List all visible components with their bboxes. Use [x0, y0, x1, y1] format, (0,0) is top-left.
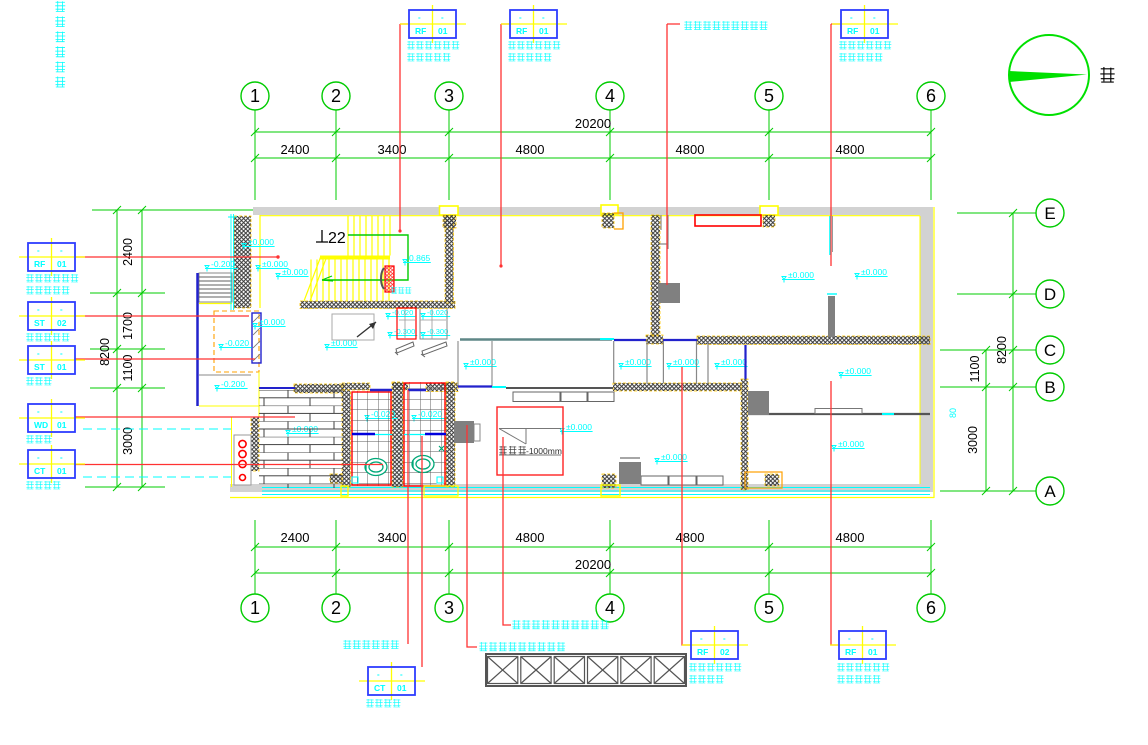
svg-text:-: -: [37, 453, 40, 462]
svg-text:±0.000: ±0.000: [282, 267, 308, 277]
svg-text:±0.000: ±0.000: [661, 452, 687, 462]
svg-text:8200: 8200: [98, 338, 112, 366]
svg-text:-: -: [441, 13, 444, 22]
svg-text:RF: RF: [847, 26, 858, 36]
svg-text:6: 6: [926, 86, 936, 106]
svg-text:ST: ST: [34, 318, 46, 328]
svg-text:01: 01: [57, 466, 67, 476]
svg-text:4800: 4800: [836, 142, 865, 157]
svg-text:E: E: [1044, 204, 1055, 223]
svg-text:5: 5: [764, 86, 774, 106]
svg-text:8200: 8200: [995, 336, 1009, 364]
svg-text:-: -: [723, 634, 726, 643]
svg-text:-: -: [60, 305, 63, 314]
svg-text:A: A: [1044, 482, 1056, 501]
svg-text:±0.000: ±0.000: [248, 237, 274, 247]
svg-text:01: 01: [57, 259, 67, 269]
svg-text:-0.200: -0.200: [221, 379, 245, 389]
svg-text:3: 3: [444, 598, 454, 618]
svg-text:-: -: [848, 634, 851, 643]
svg-text:ST: ST: [34, 362, 46, 372]
svg-text:20200: 20200: [575, 557, 611, 572]
svg-text:0.865: 0.865: [409, 253, 431, 263]
svg-text:4: 4: [605, 86, 615, 106]
svg-text:-: -: [519, 13, 522, 22]
svg-text:01: 01: [539, 26, 549, 36]
svg-text:02: 02: [57, 318, 67, 328]
svg-text:4800: 4800: [836, 530, 865, 545]
svg-text:2: 2: [331, 86, 341, 106]
svg-text:-: -: [37, 305, 40, 314]
svg-text:±0.000: ±0.000: [259, 317, 285, 327]
svg-text:80: 80: [948, 408, 958, 418]
svg-text:6: 6: [926, 598, 936, 618]
svg-text:1: 1: [250, 86, 260, 106]
svg-text:±0.000: ±0.000: [838, 439, 864, 449]
svg-text:-0.020: -0.020: [427, 308, 448, 317]
svg-text:3000: 3000: [966, 426, 980, 454]
svg-text:2400: 2400: [281, 530, 310, 545]
svg-text:WD: WD: [34, 420, 48, 430]
svg-text:4800: 4800: [516, 142, 545, 157]
svg-text:01: 01: [870, 26, 880, 36]
svg-text:20200: 20200: [575, 116, 611, 131]
svg-text:-: -: [37, 349, 40, 358]
svg-text:4: 4: [605, 598, 615, 618]
svg-text:3000: 3000: [121, 427, 135, 455]
svg-text:-: -: [60, 407, 63, 416]
svg-text:-: -: [60, 246, 63, 255]
svg-text:-0.200: -0.200: [211, 259, 235, 269]
svg-text:-: -: [700, 634, 703, 643]
svg-text:01: 01: [438, 26, 448, 36]
svg-text:-: -: [60, 349, 63, 358]
svg-text:-: -: [850, 13, 853, 22]
svg-text:01: 01: [397, 683, 407, 693]
svg-text:22: 22: [328, 230, 346, 247]
svg-text:2400: 2400: [281, 142, 310, 157]
svg-text:B: B: [1044, 378, 1055, 397]
svg-text:-1000mm: -1000mm: [526, 446, 562, 456]
svg-text:01: 01: [57, 420, 67, 430]
svg-text:3400: 3400: [378, 142, 407, 157]
svg-text:01: 01: [868, 647, 878, 657]
svg-text:-: -: [873, 13, 876, 22]
svg-text:RF: RF: [516, 26, 527, 36]
svg-text:4800: 4800: [676, 142, 705, 157]
svg-text:-: -: [37, 407, 40, 416]
svg-text:±0.000: ±0.000: [845, 366, 871, 376]
svg-text:RF: RF: [845, 647, 856, 657]
svg-text:-: -: [418, 13, 421, 22]
svg-text:02: 02: [720, 647, 730, 657]
svg-text:-0.300: -0.300: [427, 327, 448, 336]
svg-text:RF: RF: [697, 647, 708, 657]
svg-text:-: -: [871, 634, 874, 643]
svg-text:±0.000: ±0.000: [788, 270, 814, 280]
svg-text:3: 3: [444, 86, 454, 106]
svg-text:-: -: [542, 13, 545, 22]
svg-text:4800: 4800: [516, 530, 545, 545]
svg-text:±0.000: ±0.000: [861, 267, 887, 277]
svg-text:4800: 4800: [676, 530, 705, 545]
svg-text:2: 2: [331, 598, 341, 618]
svg-text:CT: CT: [34, 466, 46, 476]
svg-text:RF: RF: [415, 26, 426, 36]
svg-text:3400: 3400: [378, 530, 407, 545]
svg-text:-0.020: -0.020: [392, 308, 413, 317]
svg-text:2400: 2400: [121, 238, 135, 266]
svg-text:±0.000: ±0.000: [721, 357, 747, 367]
svg-text:D: D: [1044, 285, 1056, 304]
svg-text:01: 01: [57, 362, 67, 372]
svg-text:±0.000: ±0.000: [673, 357, 699, 367]
svg-text:RF: RF: [34, 259, 45, 269]
svg-text:CT: CT: [374, 683, 386, 693]
svg-text:-: -: [37, 246, 40, 255]
svg-text:C: C: [1044, 341, 1056, 360]
svg-text:5: 5: [764, 598, 774, 618]
svg-text:±0.000: ±0.000: [566, 422, 592, 432]
svg-text:-: -: [400, 670, 403, 679]
svg-text:-: -: [60, 453, 63, 462]
svg-text:-: -: [377, 670, 380, 679]
svg-text:1: 1: [250, 598, 260, 618]
svg-text:-0.020: -0.020: [225, 338, 249, 348]
svg-text:1100: 1100: [968, 356, 982, 383]
